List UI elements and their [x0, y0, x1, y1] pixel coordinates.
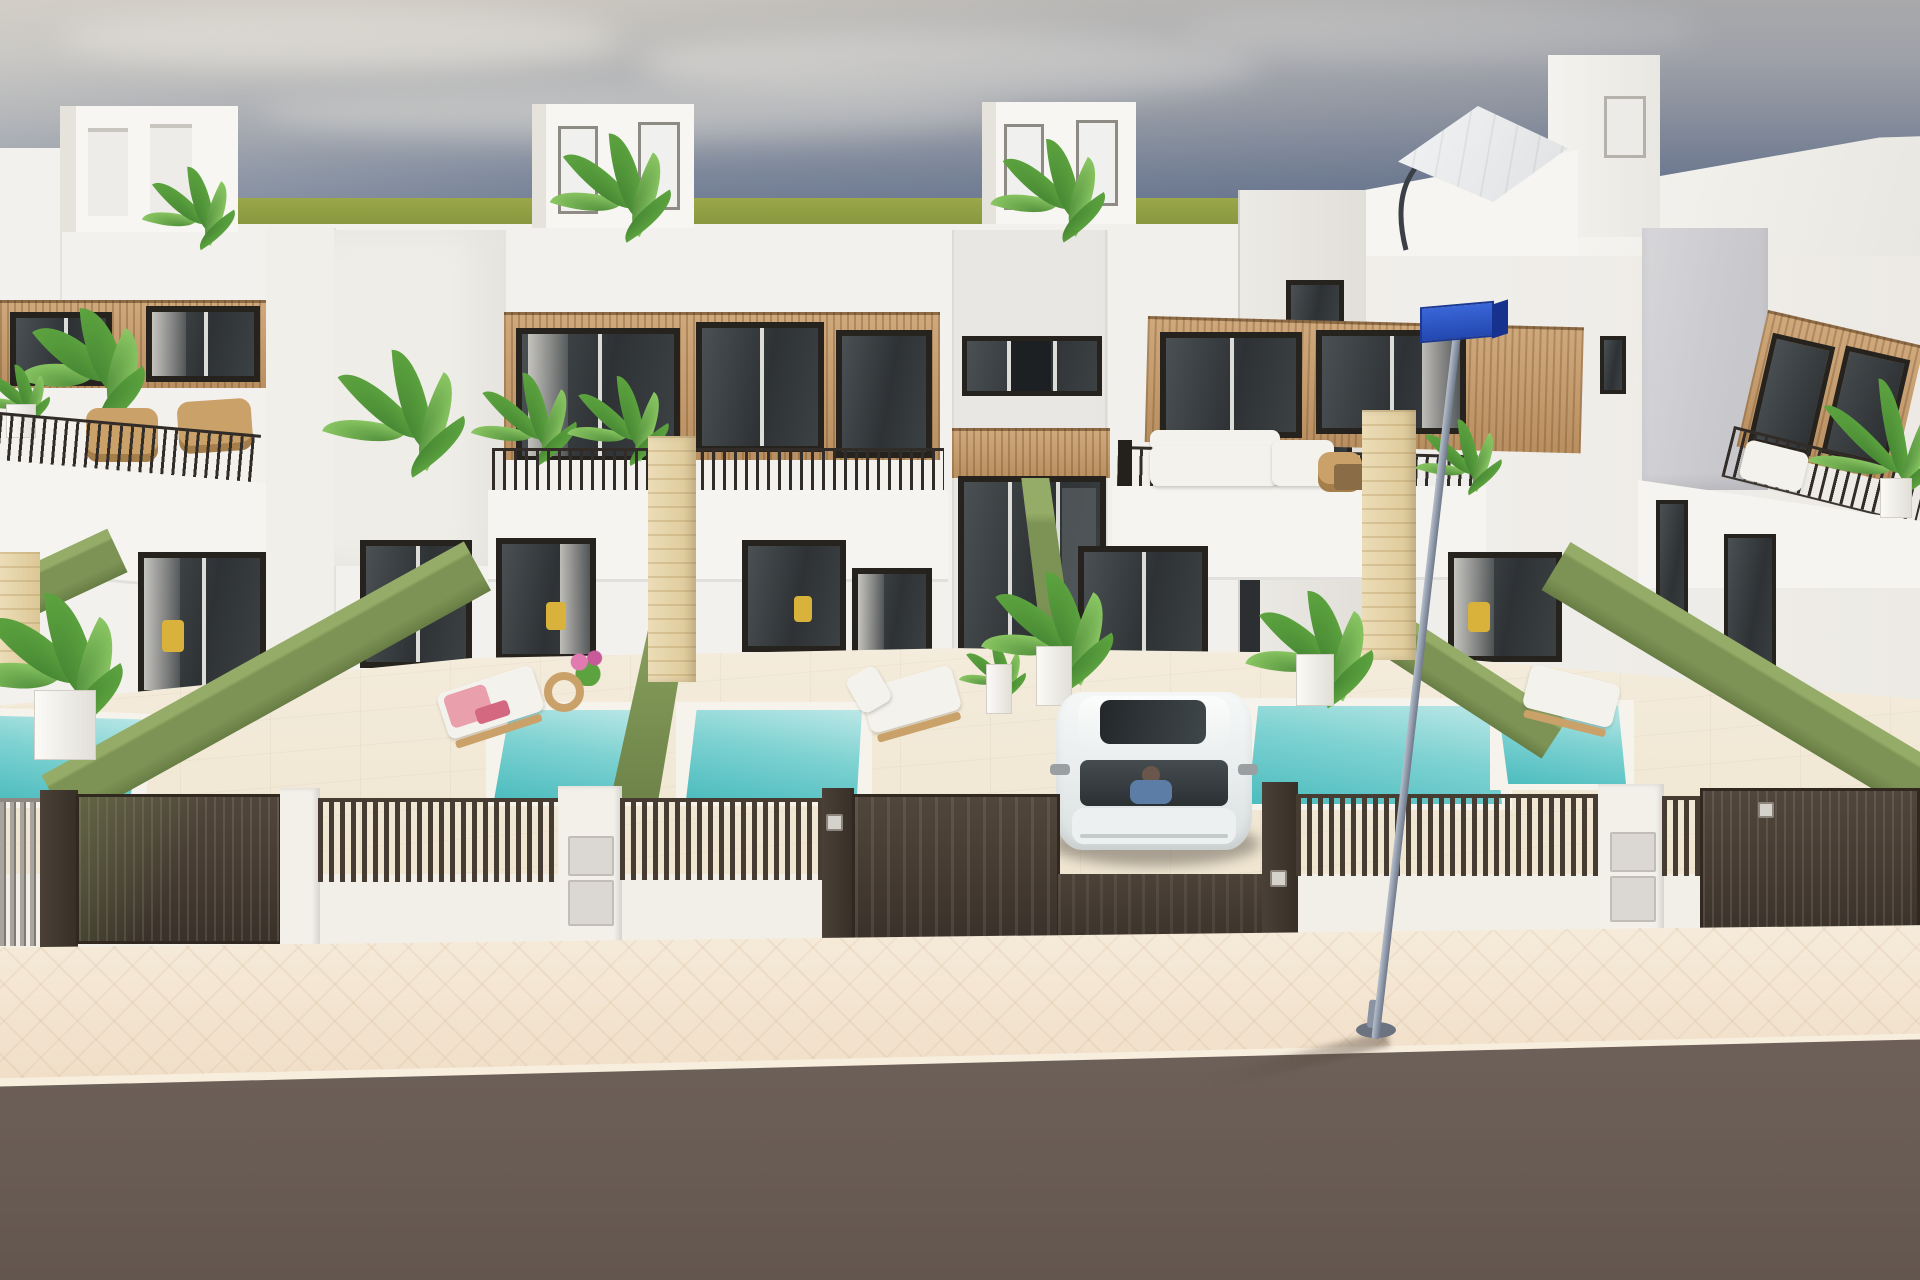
- gate-keypad: [1758, 802, 1774, 818]
- balcony-plant: [1862, 352, 1920, 486]
- wood-lintel: [952, 428, 1110, 478]
- balcony-plant: [598, 358, 654, 452]
- driver-torso: [1130, 780, 1172, 804]
- rooftop-plant: [584, 112, 658, 224]
- fence-pillar-white: [280, 788, 320, 948]
- rooftop-box-2-side: [532, 104, 546, 228]
- planter-box: [34, 690, 96, 760]
- slatted-fence: [318, 798, 562, 882]
- plant-pot: [1296, 654, 1334, 706]
- outdoor-sofa: [1150, 446, 1280, 486]
- slatted-fence: [1296, 794, 1600, 876]
- ground-window: [742, 540, 846, 652]
- sandstone-pillar: [1362, 410, 1416, 660]
- slatted-fence: [620, 798, 826, 880]
- gate-keypad: [826, 814, 843, 831]
- window: [1160, 332, 1302, 438]
- car-mirror: [1050, 764, 1070, 775]
- letterbox-panel: [568, 836, 614, 876]
- house-side-column: [266, 228, 336, 652]
- rooftop-door: [88, 128, 128, 216]
- gate-keypad: [1270, 870, 1287, 887]
- balcony-railing: [492, 448, 944, 494]
- driveway-gate: [852, 794, 1060, 944]
- pool: [686, 710, 862, 800]
- car-sunroof: [1100, 700, 1206, 744]
- sandstone-pillar: [648, 436, 696, 682]
- pedestrian-gate: [76, 794, 282, 944]
- rooftop-box-1-side: [60, 106, 76, 232]
- wooden-stool: [544, 672, 584, 712]
- architectural-render: [0, 0, 1920, 1280]
- balcony-plant: [364, 324, 448, 456]
- window: [696, 322, 824, 452]
- plant-pot: [1880, 478, 1912, 518]
- fence-pillar: [40, 790, 78, 948]
- fence-pillar: [1262, 782, 1298, 948]
- fence-pillar: [822, 788, 854, 948]
- pedestrian-gate: [1700, 788, 1920, 948]
- window: [836, 330, 932, 458]
- letterbox-panel: [568, 880, 614, 926]
- balcony-plant: [504, 354, 562, 452]
- rooftop-door: [1604, 96, 1646, 158]
- window-slit: [1600, 336, 1626, 394]
- plant-pot: [986, 664, 1012, 714]
- letterbox-panel: [1610, 876, 1656, 922]
- letterbox-panel: [1610, 832, 1656, 872]
- car: [1050, 672, 1260, 877]
- window: [146, 306, 260, 382]
- car-grille: [1080, 834, 1228, 838]
- street-sign-side: [1492, 299, 1508, 338]
- rooftop-plant: [1022, 118, 1094, 224]
- grey-slat-panel: [0, 798, 42, 946]
- window-strip: [962, 336, 1102, 396]
- railing-post: [1118, 440, 1132, 492]
- balcony-plant: [44, 286, 144, 402]
- yard-palm: [6, 566, 116, 706]
- car-hood: [1072, 808, 1236, 844]
- rooftop-plant: [168, 150, 224, 236]
- car-mirror: [1238, 764, 1258, 775]
- slatted-fence: [1662, 796, 1702, 876]
- street-sign: [1420, 301, 1494, 343]
